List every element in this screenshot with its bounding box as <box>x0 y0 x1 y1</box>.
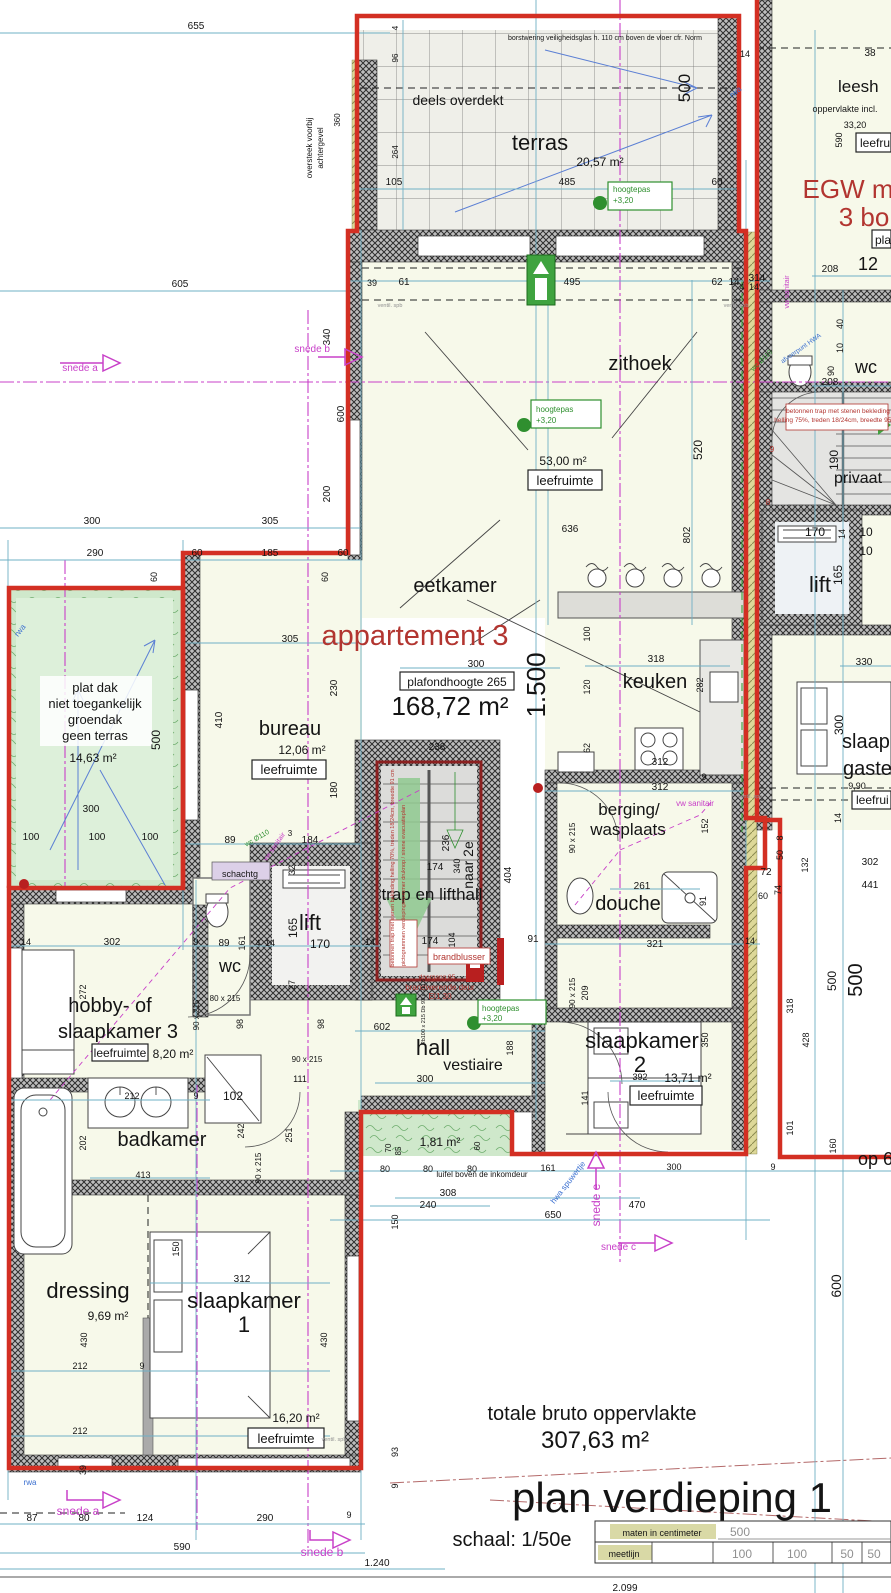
dim: 62 <box>582 743 592 753</box>
dim: 40 <box>835 319 845 329</box>
dim: 9 <box>701 772 706 782</box>
dim: 590 <box>174 1542 191 1553</box>
bed-slaapkamer1 <box>150 1232 270 1418</box>
dim: 1.240 <box>364 1558 389 1569</box>
room-label-wc-right: wc <box>854 357 877 377</box>
note-plafondhoogte: plafondhoogte 265 <box>407 675 507 689</box>
dim: 4 <box>391 25 400 30</box>
dim: 111 <box>293 1074 307 1084</box>
dim: 38 <box>864 48 876 59</box>
dim: 305 <box>262 516 279 527</box>
room-label-slaapkamer1-nr: 1 <box>238 1312 250 1337</box>
vent-note: ventil. spb <box>724 303 749 309</box>
apartment-area: 168,72 m² <box>391 691 508 721</box>
dim: 208 <box>822 377 839 388</box>
dim: 441 <box>862 880 879 891</box>
room-label-douche: douche <box>595 893 661 915</box>
dim: 410 <box>214 711 225 728</box>
dim: 100 <box>23 832 40 843</box>
legend-maten: maten in centimeter <box>622 1528 701 1538</box>
dim: 413 <box>135 1170 150 1180</box>
scale-label: schaal: 1/50e <box>453 1529 572 1551</box>
dim: 165 <box>286 918 300 938</box>
room-area-dressing: 9,69 m² <box>88 1309 129 1323</box>
room-area-hobby: 8,20 m² <box>153 1047 194 1061</box>
leefruimte-box: leefruimte <box>637 1088 694 1103</box>
dim: 340 <box>452 858 462 873</box>
legend-50a: 50 <box>840 1547 854 1561</box>
fire-door-marker <box>497 938 504 985</box>
door-size: 90 x 215 <box>192 999 201 1030</box>
dim: 4 <box>739 282 744 292</box>
dim: 340 <box>322 328 333 345</box>
dim: 350 <box>700 1032 710 1047</box>
dim: 27 <box>287 980 297 990</box>
dim: 152 <box>700 818 710 833</box>
note-platdak-3: groendak <box>68 712 123 727</box>
dim: 802 <box>682 526 693 543</box>
note-oppervlakte-value: 33,20 <box>844 120 867 130</box>
dim: 93 <box>390 1447 400 1457</box>
dim: 330 <box>856 657 873 668</box>
dim: 238 <box>429 742 446 753</box>
dim: 60 <box>711 177 723 188</box>
leefruimte-box: leefru <box>860 136 890 150</box>
dim: 300 <box>666 1162 681 1172</box>
level-marker: 1.500 <box>521 652 551 717</box>
dim: 500 <box>825 971 839 991</box>
bed-hobby <box>22 950 74 1074</box>
dim: 209 <box>580 985 590 1000</box>
legend-50b: 50 <box>867 1547 881 1561</box>
room-area-slaapkamer1: 16,20 m² <box>272 1411 319 1425</box>
dim: 2.099 <box>612 1583 637 1593</box>
dim: 321 <box>647 939 664 950</box>
dim: 80 <box>380 1164 390 1174</box>
dim: 312 <box>234 1274 251 1285</box>
dim: 14 <box>265 938 275 948</box>
dim: 60 <box>758 891 768 901</box>
dim: 14 <box>740 49 750 59</box>
double-washbasin <box>88 1078 188 1128</box>
door-size: 90 x 215 <box>254 1152 263 1183</box>
dim: 4 <box>255 938 260 948</box>
fire-extinguisher-label: brandblusser <box>433 952 485 962</box>
room-label-lift-center: lift <box>299 910 321 935</box>
dim: 60 <box>473 1141 482 1150</box>
dim: 251 <box>284 1127 294 1142</box>
dim: 242 <box>236 1123 246 1138</box>
dim: 124 <box>137 1513 154 1524</box>
note-trap-2: helling 75%, treden 18/24cm, breedte 95 … <box>774 417 891 424</box>
room-area-slaapkamer2: 13,71 m² <box>664 1071 711 1085</box>
room-label-slaapkamer1: slaapkamer <box>187 1288 301 1313</box>
room-label-berging-1: berging/ <box>598 800 660 819</box>
dim: 9 <box>346 1510 351 1520</box>
dim: 650 <box>545 1210 562 1221</box>
dim: 430 <box>79 1332 89 1347</box>
room-label-hobby-1: hobby- of <box>68 995 152 1017</box>
room-label-hobby-2: slaapkamer 3 <box>58 1021 178 1043</box>
room-area-gastenkamer: 9,90 <box>848 781 866 791</box>
dim: 14 <box>749 282 759 292</box>
dim: 60 <box>320 572 330 582</box>
dim: 9 <box>139 1361 144 1371</box>
dim: 282 <box>695 677 705 692</box>
dim: 85 <box>394 1146 403 1155</box>
room-area-bureau: 12,06 m² <box>278 743 325 757</box>
dim: 264 <box>391 145 400 159</box>
dim: 14 <box>365 937 375 947</box>
note-platdak-2: niet toegankelijk <box>48 696 142 711</box>
dim: 430 <box>319 1332 329 1347</box>
legend-meetlijn: meetlijn <box>608 1549 639 1559</box>
dim: 101 <box>785 1120 795 1135</box>
niche-area: 1,81 m² <box>420 1135 461 1149</box>
dim: 90 <box>826 366 836 376</box>
dim: 10 <box>859 525 873 539</box>
dim: 3 <box>288 829 293 838</box>
dim: 200 <box>322 485 333 502</box>
section-label-a: snede a <box>62 363 98 374</box>
dim: 98 <box>316 1019 326 1029</box>
room-label-lift-right: lift <box>809 572 831 597</box>
dim: 9 <box>193 937 198 947</box>
room-area-terras: 20,57 m² <box>576 155 623 169</box>
dim: 605 <box>172 279 189 290</box>
dim: 150 <box>390 1214 400 1229</box>
room-label-wc-center: wc <box>218 956 241 976</box>
total-area-label: totale bruto oppervlakte <box>487 1403 696 1425</box>
dim: 428 <box>801 1032 811 1047</box>
legend-500: 500 <box>730 1525 750 1539</box>
smoke-detector-dot <box>533 783 543 793</box>
dim: 120 <box>582 679 592 694</box>
dim: 170 <box>805 525 825 539</box>
dim: 102 <box>223 1089 243 1103</box>
note-trap-1: betonnen trap met stenen bekleding <box>786 408 890 415</box>
note-platdak-area: 14,63 m² <box>69 751 116 765</box>
dim: 60 <box>149 572 159 582</box>
dim: 590 <box>834 132 844 147</box>
dim: 80 <box>78 1513 90 1524</box>
dim: 174 <box>427 862 444 873</box>
dim: 190 <box>827 450 841 470</box>
vent-note: ventil. spb <box>322 1437 347 1443</box>
dim: 318 <box>785 998 795 1013</box>
dim: 318 <box>648 654 665 665</box>
exit-sign-icon <box>527 255 555 305</box>
shower-douche <box>662 872 717 923</box>
toilet-center <box>206 894 228 927</box>
dim: 312 <box>652 757 669 768</box>
dim: 14 <box>837 529 847 539</box>
room-label-berging-2: wasplaats <box>589 820 666 839</box>
note-pictogrammen: pictogrammen verdiepingsnummer druknop /… <box>401 805 407 966</box>
util-vw-sanitair: vw sanitair <box>676 799 714 808</box>
dim: 100 <box>89 832 106 843</box>
room-label-bureau: bureau <box>259 718 321 740</box>
note-egw-2: 3 bo <box>839 202 890 232</box>
room-label-eetkamer: eetkamer <box>413 575 497 597</box>
dim: 360 <box>333 113 342 127</box>
dim: 160 <box>828 1138 838 1153</box>
dim: 14 <box>833 813 843 823</box>
dim: 80 <box>423 1164 433 1174</box>
bathtub <box>14 1088 72 1254</box>
dim: 302 <box>862 857 879 868</box>
smoke-detector-dot-2 <box>19 879 29 889</box>
hoogtepas-dot <box>593 196 607 210</box>
dim: 9 <box>390 1483 400 1488</box>
hoogtepas-label: hoogtepas <box>482 1004 519 1013</box>
leefruimte-box: leefruimte <box>257 1431 314 1446</box>
leefruimte-box: leefrui <box>856 793 889 807</box>
note-egw-4: 12 <box>858 254 878 274</box>
dim: 10 <box>859 544 873 558</box>
note-borstwering: borstwering veiligheidsglas h. 110 cm bo… <box>508 35 702 42</box>
hoogtepas-label: hoogtepas <box>613 185 650 194</box>
hoogtepas-value: +3,20 <box>613 196 634 205</box>
dim: 300 <box>83 804 100 815</box>
dim: 500 <box>675 74 694 102</box>
dim: 240 <box>420 1200 437 1211</box>
dim: 300 <box>417 1074 434 1085</box>
dim: 305 <box>282 634 299 645</box>
room-label-keuken: keuken <box>623 671 688 693</box>
legend-100a: 100 <box>732 1547 752 1561</box>
dim: 9 <box>193 1091 198 1101</box>
dim: 96 <box>391 53 400 62</box>
hoogtepas-value: +3,20 <box>482 1014 503 1023</box>
dim: 50 <box>775 850 785 860</box>
section-label-e: snede e <box>589 1183 603 1226</box>
dim: 91 <box>698 896 708 906</box>
dim: 89 <box>224 835 236 846</box>
room-area-zithoek: 53,00 m² <box>539 454 586 468</box>
dim: 230 <box>329 679 340 696</box>
legend-100b: 100 <box>787 1547 807 1561</box>
door-size: 90 x 215 <box>292 1055 323 1064</box>
dim: 212 <box>124 1091 139 1101</box>
door-size: 90 x 215 <box>568 822 577 853</box>
note-oppervlakte: oppervlakte incl. <box>812 104 877 114</box>
note-branddeur-1: brandwerende deur <box>405 983 475 992</box>
dim: 10 <box>835 343 845 353</box>
dim: 161 <box>540 1163 555 1173</box>
dim: 72 <box>760 867 772 878</box>
dim: 132 <box>800 857 810 872</box>
dim: 174 <box>422 936 439 947</box>
schacht-label: schachtg <box>222 869 258 879</box>
door-size: 80 x 215 <box>210 994 241 1003</box>
room-label-terras: terras <box>512 130 568 155</box>
room-label-gastenkamer-1: slaapka <box>842 731 891 753</box>
dim: 300 <box>468 659 485 670</box>
dim: 8 <box>775 835 785 840</box>
washbasin-douche <box>567 878 593 914</box>
dim: 39 <box>367 278 377 288</box>
note-branddeur-2: EI1 30 <box>428 992 452 1001</box>
dim: 261 <box>634 881 651 892</box>
dim: 236 <box>441 834 452 851</box>
dim: 100 <box>142 832 159 843</box>
dim: 208 <box>822 264 839 275</box>
dim: 312 <box>652 782 669 793</box>
note-luifel: luifel boven de inkomdeur <box>436 1170 528 1179</box>
dim: 655 <box>188 21 205 32</box>
vent-note: ventil. spb <box>378 303 403 309</box>
room-label-zithoek: zithoek <box>608 353 672 375</box>
stair-direction: naar 2e <box>460 841 476 889</box>
dim: 70 <box>384 1143 393 1152</box>
dim: 636 <box>562 524 579 535</box>
room-label-vestiaire: vestiaire <box>443 1057 503 1074</box>
dim: 188 <box>505 1040 515 1055</box>
dim: 300 <box>84 516 101 527</box>
dim: 60 <box>191 548 203 559</box>
hoogtepas-value: +3,20 <box>536 416 557 425</box>
dim: 150 <box>171 1241 181 1256</box>
note-deels-overdekt: deels overdekt <box>412 92 503 108</box>
dim: 14 <box>21 937 31 947</box>
dim: 104 <box>447 932 457 947</box>
dim: 170 <box>310 937 330 951</box>
util-vw-sanitair: vw sanitair <box>784 275 791 309</box>
note-platdak-1: plat dak <box>72 680 118 695</box>
dim: 184 <box>302 835 319 846</box>
room-label-dressing: dressing <box>46 1278 129 1303</box>
total-area-value: 307,63 m² <box>541 1427 649 1454</box>
room-label-privaat: privaat <box>834 470 883 487</box>
dim: 165 <box>831 565 845 585</box>
dim: 520 <box>691 440 705 460</box>
dim: 602 <box>374 1022 391 1033</box>
stair-number: 9 <box>770 445 775 454</box>
leefruimte-box: leefruimte <box>536 473 593 488</box>
dim: 61 <box>398 277 410 288</box>
dim: 89 <box>218 938 230 949</box>
dim: 392 <box>632 1072 647 1082</box>
dim: 495 <box>564 277 581 288</box>
dim: 290 <box>257 1513 274 1524</box>
dim: 60 <box>337 548 349 559</box>
stair-number: 8 <box>766 498 771 507</box>
dim: 161 <box>237 935 247 950</box>
door-size: 90 x 215 <box>568 977 577 1008</box>
dim: 74 <box>773 885 783 895</box>
note-egw-3: pla <box>875 233 891 247</box>
dim: 87 <box>26 1513 38 1524</box>
dim: 98 <box>235 1019 245 1029</box>
note-oversteek-1: oversteek voorbij <box>305 118 314 179</box>
dim: 91 <box>527 934 539 945</box>
dim: 600 <box>336 405 347 422</box>
dim: 9 <box>770 1162 775 1172</box>
hoogtepas-label: hoogtepas <box>536 405 573 414</box>
dim: 308 <box>440 1188 457 1199</box>
room-label-badkamer: badkamer <box>118 1129 207 1151</box>
dim: 212 <box>72 1361 87 1371</box>
dim: 39 <box>78 1465 88 1475</box>
dim: 180 <box>329 781 340 798</box>
hoogtepas-dot-2 <box>517 418 531 432</box>
dim: 290 <box>87 548 104 559</box>
dim: 32 <box>287 865 297 875</box>
note-op6: op 6 <box>858 1149 891 1169</box>
leefruimte-box: leefruimte <box>260 762 317 777</box>
section-label-b-bottom: snede b <box>301 1545 344 1559</box>
util-rwa: rwa <box>24 1478 37 1487</box>
note-oversteek-2: achtergevel <box>316 127 325 169</box>
dim: 470 <box>629 1200 646 1211</box>
washer-berging <box>558 752 594 772</box>
note-egw-1: EGW m <box>803 174 891 204</box>
dim: 212 <box>72 1426 87 1436</box>
exit-sign-icon-2 <box>396 994 416 1016</box>
dim: 14 <box>728 277 740 288</box>
dim: 485 <box>559 177 576 188</box>
dim: 62 <box>711 277 723 288</box>
section-label-c: snede c <box>601 1242 636 1253</box>
dim: 105 <box>386 177 403 188</box>
dim: 500 <box>149 730 163 750</box>
room-label-leeshoek: leesh <box>838 77 879 96</box>
floor-plan-drawing: borstwering veiligheidsglas h. 110 cm bo… <box>0 0 891 1593</box>
apartment-title: appartement 3 <box>321 620 508 652</box>
room-label-gastenkamer-2: gaste <box>843 758 891 780</box>
note-platdak-4: geen terras <box>62 728 128 743</box>
note-trap-center: betonnen trap met stenen bekleding helli… <box>390 769 396 967</box>
plan-title: plan verdieping 1 <box>512 1474 832 1521</box>
dim: 202 <box>78 1135 88 1150</box>
dim: 404 <box>503 866 514 883</box>
dim: 500 <box>845 963 867 996</box>
leefruimte-box: leefruimte <box>94 1046 147 1060</box>
dim: 141 <box>580 1090 590 1105</box>
dim: 100 <box>582 626 592 641</box>
dim: 185 <box>262 548 279 559</box>
dim: 600 <box>828 1274 844 1298</box>
vent-note: ventil. spb <box>738 794 763 800</box>
room-label-slaapkamer2: slaapkamer <box>585 1028 699 1053</box>
floor-plan-sheet: borstwering veiligheidsglas h. 110 cm bo… <box>0 0 891 1593</box>
dim: 14 <box>745 936 755 946</box>
dim: 302 <box>104 937 121 948</box>
